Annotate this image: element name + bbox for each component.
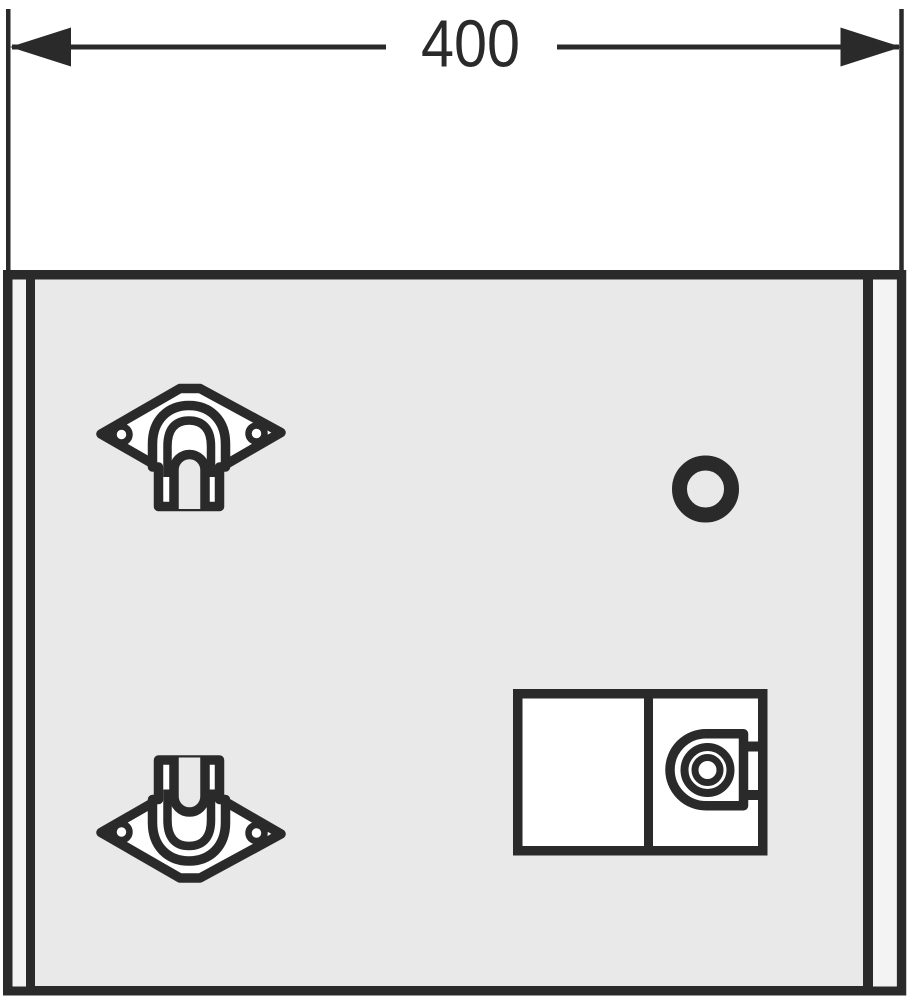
- cabinet-front-panel: [8, 272, 902, 993]
- panel-right-edge-strip: [873, 280, 897, 987]
- lock-latch-tab-top: [743, 742, 758, 752]
- drawing-canvas: 400: [0, 0, 913, 1000]
- lock-unit: [518, 689, 763, 855]
- arrowhead-right-icon: [841, 28, 902, 67]
- width-dimension: 400: [8, 7, 901, 273]
- lock-latch-tab-bottom: [743, 790, 758, 800]
- panel-outline: [8, 275, 902, 991]
- dimension-value: 400: [421, 7, 520, 82]
- arrowhead-left-icon: [10, 28, 71, 67]
- panel-left-edge-strip: [13, 280, 27, 987]
- technical-drawing: 400: [0, 0, 913, 1000]
